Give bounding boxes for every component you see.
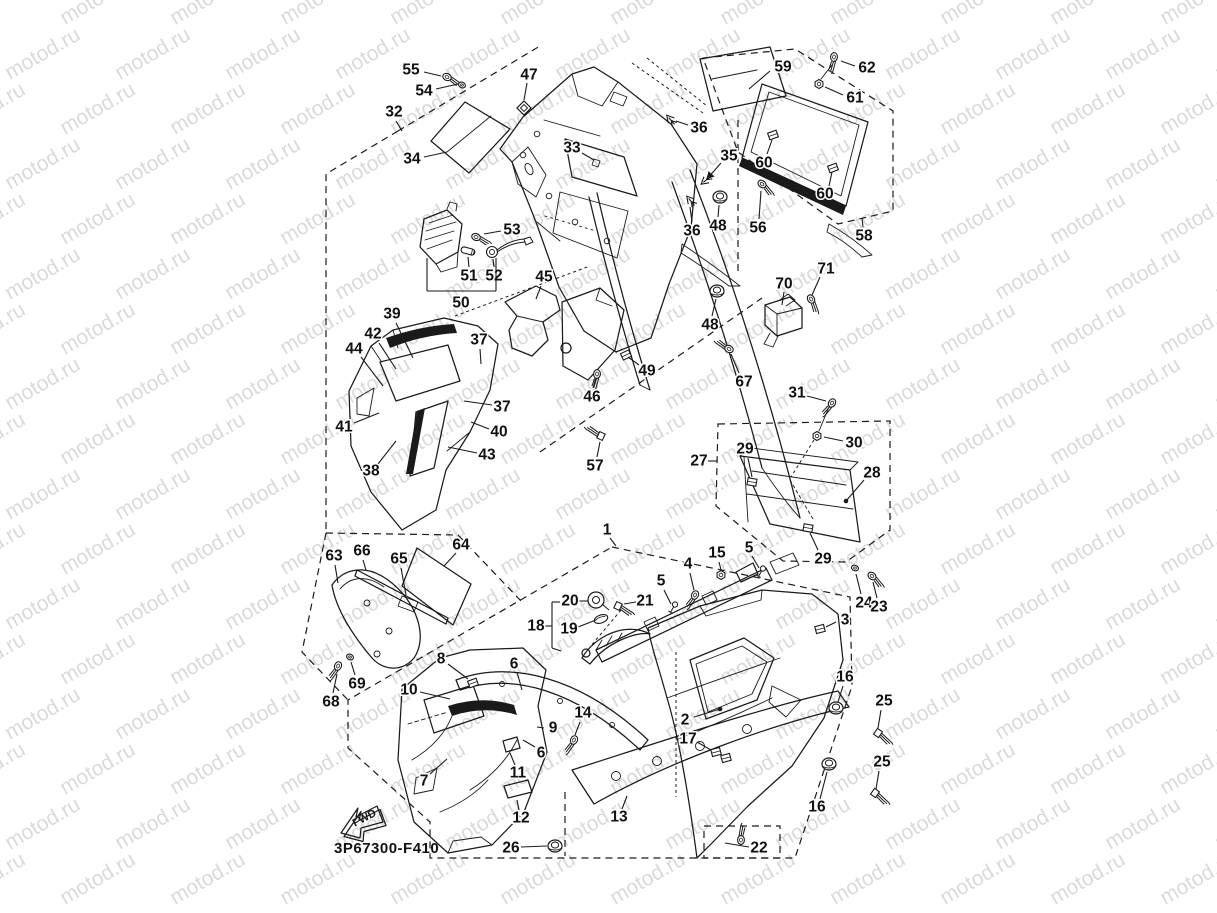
part-number-text: 64 [452, 537, 470, 554]
watermark-text: motod.ru [1, 23, 84, 84]
part-label-45: 45 [535, 269, 553, 300]
part-number-text: 38 [362, 463, 380, 480]
watermark-text: motod.ru [221, 243, 304, 304]
watermark-text: motod.ru [221, 353, 304, 414]
part-label-66: 66 [353, 543, 371, 571]
part-number-text: 4 [684, 556, 693, 573]
part-number-text: 59 [774, 59, 792, 76]
part-number-text: 16 [808, 799, 826, 816]
part-number-text: 33 [563, 140, 581, 157]
watermark-text: motod.ru [1156, 628, 1217, 689]
watermark-text: motod.ru [276, 408, 359, 469]
part-label-29: 29 [810, 533, 832, 568]
watermark-text: motod.ru [1211, 683, 1217, 744]
watermark-text: motod.ru [56, 848, 139, 909]
watermark-text: motod.ru [1046, 408, 1129, 469]
watermark-text: motod.ru [1046, 298, 1129, 359]
watermark-text: motod.ru [936, 738, 1019, 799]
watermark-text: motod.ru [166, 628, 249, 689]
watermark-text: motod.ru [1101, 463, 1184, 524]
part-number-text: 51 [460, 268, 478, 285]
watermark-text: motod.ru [1101, 133, 1184, 194]
part-number-text: 60 [816, 186, 833, 203]
nut-part-glyph [717, 571, 725, 580]
clip-part-glyph [803, 524, 813, 532]
part-number-text: 54 [415, 83, 433, 100]
watermark-text: motod.ru [56, 628, 139, 689]
watermark-text: motod.ru [1, 683, 84, 744]
watermark-text: motod.ru [661, 793, 744, 854]
part-number-text: 50 [452, 295, 469, 312]
watermark-text: motod.ru [1, 353, 84, 414]
watermark-text: motod.ru [0, 408, 29, 469]
watermark-text: motod.ru [936, 78, 1019, 139]
watermark-text: motod.ru [441, 463, 524, 524]
watermark-text: motod.ru [1156, 298, 1217, 359]
part-number-text: 39 [383, 306, 401, 323]
part-number-text: 1 [603, 522, 612, 539]
part-number-text: 16 [836, 669, 854, 686]
part-number-text: 67 [735, 374, 752, 391]
watermark-text: motod.ru [111, 793, 194, 854]
part-label-48: 48 [709, 205, 727, 235]
watermark-text: motod.ru [166, 738, 249, 799]
bolt-part-glyph [870, 788, 892, 807]
watermark-text: motod.ru [716, 628, 799, 689]
part-label-40: 40 [471, 422, 508, 441]
part-label-60: 60 [816, 172, 833, 203]
watermark-text: motod.ru [771, 353, 854, 414]
watermark-text: motod.ru [166, 848, 249, 909]
part-number-text: 6 [510, 656, 519, 673]
watermark-text: motod.ru [1101, 243, 1184, 304]
part-label-1: 1 [603, 522, 616, 547]
watermark-text: motod.ru [551, 23, 634, 84]
watermark-text: motod.ru [1101, 23, 1184, 84]
part-label-47: 47 [520, 67, 537, 101]
watermark-text: motod.ru [1211, 463, 1217, 524]
watermark-text: motod.ru [221, 793, 304, 854]
part-number-text: 28 [863, 465, 881, 482]
watermark-text: motod.ru [1211, 353, 1217, 414]
clip-part-glyph [711, 747, 722, 756]
part-number-text: 22 [750, 840, 767, 857]
part-label-10: 10 [400, 682, 450, 700]
part-label-48: 48 [701, 299, 719, 334]
watermark-text: motod.ru [1101, 573, 1184, 634]
part-number-text: 26 [502, 840, 520, 857]
watermark-text: motod.ru [0, 78, 29, 139]
watermark-text: motod.ru [991, 683, 1074, 744]
watermark-text: motod.ru [1156, 518, 1217, 579]
part-number-text: 34 [403, 151, 421, 168]
watermark-text: motod.ru [936, 408, 1019, 469]
part-number-text: 5 [745, 540, 754, 557]
watermark-text: motod.ru [606, 628, 689, 689]
watermark-text: motod.ru [826, 738, 909, 799]
clip-part-glyph [468, 678, 479, 688]
watermark-text: motod.ru [661, 463, 744, 524]
part-number-text: 49 [638, 363, 656, 380]
bolt-part-glyph [582, 424, 605, 440]
part-number-text: 48 [701, 317, 719, 334]
part-label-61: 61 [825, 87, 864, 107]
part-number-text: 70 [775, 276, 792, 293]
part-number-text: 10 [400, 682, 417, 699]
exploded-parts-diagram: motod.rumotod.rumotod.rumotod.rumotod.ru… [0, 0, 1217, 913]
watermark-text: motod.ru [1, 793, 84, 854]
grommet-part-glyph [710, 285, 724, 297]
watermark-text: motod.ru [991, 243, 1074, 304]
watermark-text: motod.ru [881, 683, 964, 744]
watermark-text: motod.ru [1, 463, 84, 524]
watermark-text: motod.ru [221, 133, 304, 194]
watermark-text: motod.ru [826, 78, 909, 139]
watermark-text: motod.ru [0, 848, 29, 909]
part-number-text: 71 [817, 261, 835, 278]
watermark-text: motod.ru [991, 133, 1074, 194]
part-number-text: 3 [841, 612, 850, 629]
part-label-57: 57 [586, 442, 603, 475]
watermark-text: motod.ru [1046, 518, 1129, 579]
part-number-text: 58 [855, 228, 873, 245]
watermark-text: motod.ru [826, 298, 909, 359]
part-number-text: 14 [574, 705, 592, 722]
part-number-text: 66 [353, 543, 371, 560]
part-number-text: 42 [364, 326, 381, 343]
part-label-16: 16 [808, 772, 827, 816]
watermark-text: motod.ru [936, 188, 1019, 249]
watermark-text: motod.ru [1156, 78, 1217, 139]
part-number-text: 12 [512, 810, 529, 827]
screw-part-glyph [805, 293, 822, 315]
watermark-text: motod.ru [0, 0, 29, 29]
part-number-text: 32 [385, 104, 402, 121]
watermark-layer: motod.rumotod.rumotod.rumotod.rumotod.ru… [0, 0, 1217, 909]
watermark-text: motod.ru [716, 408, 799, 469]
watermark-text: motod.ru [111, 243, 194, 304]
part-number-text: 40 [490, 424, 507, 441]
clip-part-glyph [747, 478, 757, 486]
grommet-part-glyph [829, 702, 843, 714]
watermark-text: motod.ru [826, 518, 909, 579]
part-label-62: 62 [841, 60, 876, 77]
watermark-text: motod.ru [991, 793, 1074, 854]
watermark-text: motod.ru [0, 738, 29, 799]
watermark-text: motod.ru [276, 848, 359, 909]
watermark-text: motod.ru [111, 133, 194, 194]
nut-part-glyph [815, 80, 823, 89]
part-number-text: 11 [510, 765, 527, 782]
watermark-text: motod.ru [331, 353, 414, 414]
part-number-text: 37 [470, 332, 487, 349]
watermark-text: motod.ru [56, 738, 139, 799]
watermark-text: motod.ru [496, 408, 579, 469]
watermark-text: motod.ru [111, 573, 194, 634]
parts-catalog-page: motod.rumotod.rumotod.rumotod.rumotod.ru… [0, 0, 1217, 913]
part-label-51: 51 [460, 257, 478, 285]
part-label-60: 60 [755, 140, 772, 172]
watermark-text: motod.ru [1101, 353, 1184, 414]
part-number-text: 68 [322, 694, 340, 711]
part-number-text: 57 [586, 458, 603, 475]
part-label-55: 55 [402, 62, 441, 79]
part-number-text: 69 [348, 676, 366, 693]
grommet-part-glyph [822, 758, 836, 770]
watermark-text: motod.ru [881, 353, 964, 414]
watermark-text: motod.ru [276, 188, 359, 249]
part-label-34: 34 [403, 151, 447, 168]
watermark-text: motod.ru [276, 518, 359, 579]
watermark-text: motod.ru [276, 738, 359, 799]
clip-part-glyph [768, 130, 779, 140]
watermark-text: motod.ru [936, 848, 1019, 909]
part-number-text: 17 [679, 731, 696, 748]
part-number-text: 25 [875, 693, 893, 710]
watermark-text: motod.ru [606, 848, 689, 909]
watermark-text: motod.ru [1156, 0, 1217, 29]
part-number-text: 47 [520, 67, 537, 84]
watermark-text: motod.ru [716, 738, 799, 799]
part-number-text: 43 [478, 447, 496, 464]
part-label-5: 5 [657, 573, 671, 605]
watermark-text: motod.ru [1211, 573, 1217, 634]
watermark-text: motod.ru [1156, 188, 1217, 249]
part-number-text: 19 [560, 621, 578, 638]
watermark-text: motod.ru [111, 353, 194, 414]
part-number-text: 36 [690, 120, 708, 137]
part-number-text: 9 [549, 720, 558, 737]
watermark-text: motod.ru [166, 518, 249, 579]
part-number-text: 53 [503, 222, 521, 239]
part-label-49: 49 [628, 357, 656, 380]
watermark-text: motod.ru [166, 408, 249, 469]
part-number-text: 25 [873, 754, 891, 771]
watermark-text: motod.ru [0, 298, 29, 359]
clip-part-glyph [815, 624, 826, 633]
screw-part-glyph [470, 232, 493, 246]
part-label-17: 17 [679, 731, 711, 751]
part-number-text: 23 [870, 599, 888, 616]
part-label-63: 63 [325, 548, 343, 584]
watermark-text: motod.ru [56, 518, 139, 579]
part-number-text: 15 [708, 545, 726, 562]
part-label-9: 9 [537, 720, 558, 737]
part-number-text: 30 [845, 435, 862, 452]
watermark-text: motod.ru [881, 463, 964, 524]
part-number-text: 29 [814, 551, 832, 568]
watermark-text: motod.ru [881, 573, 964, 634]
watermark-text: motod.ru [1211, 133, 1217, 194]
part-label-53: 53 [484, 222, 521, 239]
watermark-text: motod.ru [331, 243, 414, 304]
watermark-text: motod.ru [1101, 683, 1184, 744]
watermark-text: motod.ru [441, 133, 524, 194]
part-number-text: 45 [535, 269, 553, 286]
part-number-text: 63 [325, 548, 343, 565]
watermark-text: motod.ru [991, 573, 1074, 634]
part-label-27: 27 [690, 453, 717, 470]
part-number-text: 56 [749, 220, 767, 237]
part-number-text: 5 [657, 573, 666, 590]
part-label-11: 11 [510, 753, 527, 782]
watermark-text: motod.ru [386, 848, 469, 909]
watermark-text: motod.ru [166, 78, 249, 139]
watermark-text: motod.ru [496, 848, 579, 909]
watermark-text: motod.ru [1101, 793, 1184, 854]
watermark-text: motod.ru [881, 23, 964, 84]
part-number-text: 13 [610, 809, 628, 826]
watermark-text: motod.ru [1211, 243, 1217, 304]
watermark-text: motod.ru [881, 243, 964, 304]
watermark-text: motod.ru [991, 463, 1074, 524]
part-number-text: 29 [736, 441, 754, 458]
part-number-text: 7 [420, 773, 429, 790]
part-number-text: 37 [493, 399, 510, 416]
part-number-text: 27 [690, 453, 707, 470]
watermark-text: motod.ru [111, 683, 194, 744]
watermark-text: motod.ru [111, 463, 194, 524]
part-number-text: 52 [485, 268, 502, 285]
part-label-4: 4 [684, 556, 694, 591]
watermark-text: motod.ru [606, 78, 689, 139]
screw-part-glyph [866, 571, 887, 590]
watermark-text: motod.ru [936, 628, 1019, 689]
part-label-23: 23 [870, 582, 888, 616]
part-number-text: 35 [720, 148, 738, 165]
watermark-text: motod.ru [991, 353, 1074, 414]
watermark-text: motod.ru [826, 408, 909, 469]
watermark-text: motod.ru [606, 298, 689, 359]
part-number-text: 61 [846, 90, 864, 107]
grommet-part-glyph [713, 191, 727, 203]
watermark-text: motod.ru [1046, 628, 1129, 689]
watermark-text: motod.ru [221, 463, 304, 524]
part-number-text: 6 [537, 745, 546, 762]
watermark-text: motod.ru [881, 793, 964, 854]
watermark-text: motod.ru [1046, 848, 1129, 909]
part-number-text: 48 [709, 218, 727, 235]
part-number-text: 41 [335, 419, 353, 436]
watermark-text: motod.ru [606, 188, 689, 249]
watermark-text: motod.ru [1211, 793, 1217, 854]
part-label-69: 69 [348, 662, 366, 693]
watermark-text: motod.ru [221, 23, 304, 84]
watermark-text: motod.ru [56, 298, 139, 359]
watermark-text: motod.ru [716, 848, 799, 909]
watermark-text: motod.ru [1, 133, 84, 194]
watermark-text: motod.ru [0, 518, 29, 579]
watermark-text: motod.ru [1211, 23, 1217, 84]
watermark-text: motod.ru [1, 573, 84, 634]
part-number-text: 36 [683, 223, 701, 240]
watermark-text: motod.ru [1046, 738, 1129, 799]
watermark-text: motod.ru [0, 188, 29, 249]
bulb-part-glyph [460, 246, 475, 255]
part-number-text: 20 [561, 593, 578, 610]
watermark-text: motod.ru [386, 408, 469, 469]
part-label-36: 36 [676, 120, 708, 137]
watermark-text: motod.ru [826, 848, 909, 909]
watermark-text: motod.ru [276, 78, 359, 139]
watermark-text: motod.ru [56, 408, 139, 469]
watermark-text: motod.ru [111, 23, 194, 84]
watermark-text: motod.ru [936, 298, 1019, 359]
watermark-text: motod.ru [331, 573, 414, 634]
part-number-text: 55 [402, 62, 420, 79]
drawing-code: 3P67300-F410 [334, 840, 439, 857]
watermark-text: motod.ru [936, 518, 1019, 579]
watermark-text: motod.ru [1046, 188, 1129, 249]
part-number-text: 2 [681, 712, 690, 729]
watermark-text: motod.ru [606, 408, 689, 469]
part-number-text: 18 [527, 618, 545, 635]
watermark-text: motod.ru [1156, 408, 1217, 469]
watermark-text: motod.ru [56, 188, 139, 249]
watermark-text: motod.ru [991, 23, 1074, 84]
watermark-text: motod.ru [1, 243, 84, 304]
watermark-text: motod.ru [221, 573, 304, 634]
watermark-text: motod.ru [166, 298, 249, 359]
part-number-text: 65 [390, 551, 408, 568]
watermark-text: motod.ru [56, 78, 139, 139]
watermark-text: motod.ru [0, 628, 29, 689]
grommet-part-glyph [548, 840, 562, 852]
part-number-text: 31 [788, 385, 806, 402]
watermark-text: motod.ru [1156, 848, 1217, 909]
watermark-text: motod.ru [1046, 78, 1129, 139]
part-number-text: 8 [437, 651, 446, 668]
watermark-text: motod.ru [1156, 738, 1217, 799]
watermark-text: motod.ru [166, 188, 249, 249]
nut-part-glyph [813, 432, 821, 441]
part-number-text: 46 [583, 389, 601, 406]
watermark-text: motod.ru [496, 188, 579, 249]
clip-part-glyph [721, 753, 732, 762]
part-label-22: 22 [725, 840, 768, 857]
part-number-text: 44 [345, 341, 363, 358]
watermark-text: motod.ru [496, 518, 579, 579]
part-label-26: 26 [502, 840, 547, 857]
part-label-37: 37 [470, 332, 487, 365]
watermark-text: motod.ru [771, 463, 854, 524]
part-number-text: 21 [636, 593, 654, 610]
washer-part-glyph [346, 653, 355, 661]
watermark-text: motod.ru [221, 683, 304, 744]
part-number-text: 62 [858, 60, 875, 77]
watermark-text: motod.ru [441, 23, 524, 84]
part-number-text: 60 [755, 155, 772, 172]
